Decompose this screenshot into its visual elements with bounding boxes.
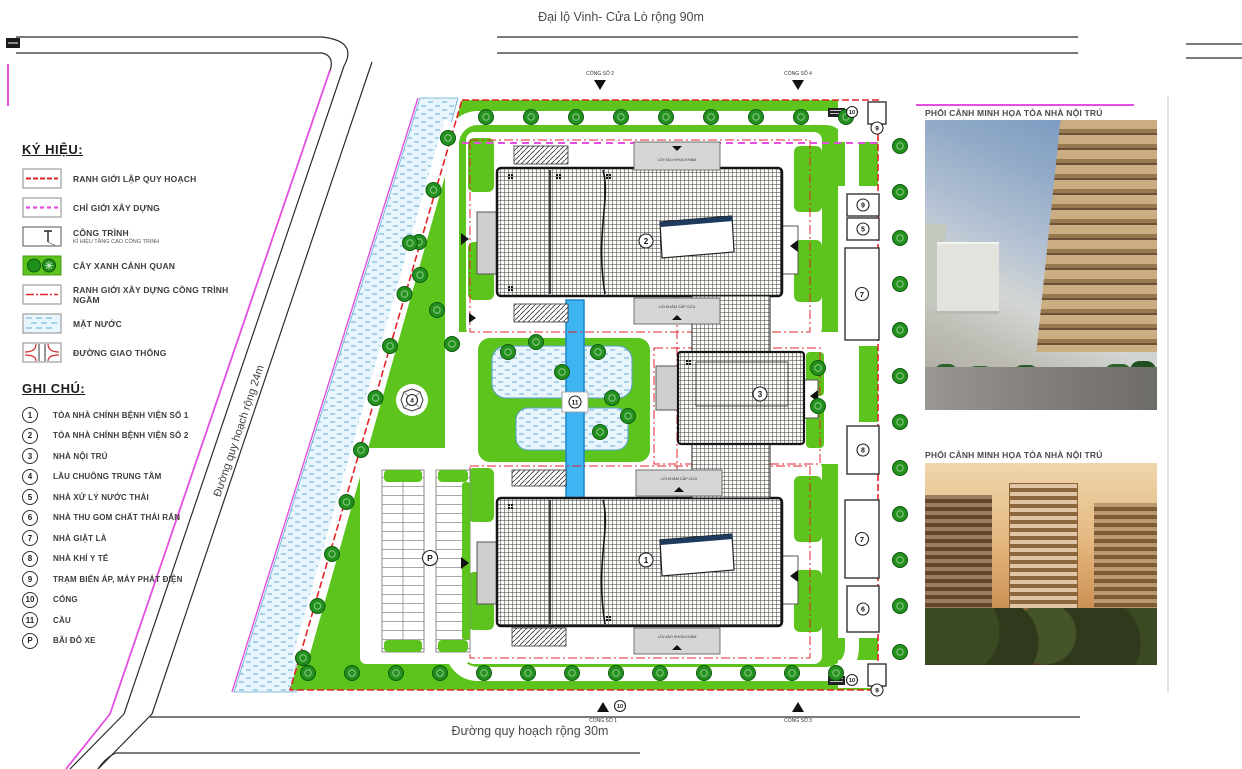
svg-text:1: 1 <box>644 556 649 565</box>
road-label-top: Đại lộ Vinh- Cửa Lò rộng 90m <box>0 10 1242 24</box>
svg-text:10: 10 <box>849 110 855 116</box>
building-hospital-1 <box>477 498 798 626</box>
build-limit-swatch <box>22 197 62 218</box>
master-plan-sheet: LỐI VÀO KHOA KHÁM LỐI KHÁM CẤP CỨU LỐI K… <box>0 0 1242 769</box>
planning-boundary-swatch <box>22 168 62 189</box>
notes-panel: GHI CHÚ: 1TÒA NHÀ CHÍNH BỆNH VIỆN SỐ 1 2… <box>22 381 257 653</box>
legend-item-underground-boundary: RANH GIỚI XÂY DỰNG CÔNG TRÌNH NGẦM <box>22 284 244 305</box>
note-item: 3NHÀ NỘI TRÚ <box>22 448 257 464</box>
note-item: 6NHÀ THU GOM CHẤT THẢI RẮN <box>22 510 257 526</box>
render2-tower <box>1009 483 1078 614</box>
building-hospital-2 <box>477 168 798 296</box>
svg-text:CỔNG SỐ 4: CỔNG SỐ 4 <box>784 70 812 77</box>
legend-heading: KÝ HIỆU: <box>22 142 244 157</box>
note-item: PBÃI ĐỖ XE <box>22 633 257 649</box>
render1-building <box>1036 120 1157 352</box>
render-caption-2: PHỐI CẢNH MINH HỌA TÒA NHÀ NỘI TRÚ <box>925 450 1175 460</box>
water-swatch <box>22 313 62 334</box>
note-item: 7NHÀ GIẶT LÀ <box>22 530 257 546</box>
traffic-swatch <box>22 342 62 363</box>
svg-text:CỔNG SỐ 3: CỔNG SỐ 3 <box>784 717 812 724</box>
render-photo-1 <box>925 120 1157 410</box>
svg-text:10: 10 <box>849 678 855 684</box>
render2-right-building <box>1094 503 1157 612</box>
svg-text:CỔNG SỐ 1: CỔNG SỐ 1 <box>589 717 617 724</box>
note-item: 10CỔNG <box>22 592 257 608</box>
render1-white-building <box>937 242 1000 315</box>
notes-heading: GHI CHÚ: <box>22 381 257 396</box>
svg-text:LỐI VÀO KHOA KHÁM: LỐI VÀO KHOA KHÁM <box>658 157 697 162</box>
svg-text:8: 8 <box>861 448 865 455</box>
note-item: 8NHÀ KHÍ Y TẾ <box>22 551 257 567</box>
render2-vegetation <box>925 608 1157 665</box>
svg-text:9: 9 <box>861 203 865 210</box>
svg-text:7: 7 <box>860 290 864 299</box>
svg-text:P: P <box>427 553 433 563</box>
svg-text:11: 11 <box>572 399 579 406</box>
svg-text:4: 4 <box>410 398 414 405</box>
svg-text:CỔNG SỐ 2: CỔNG SỐ 2 <box>586 70 614 77</box>
note-item: 9TRẠM BIẾN ÁP, MÁY PHÁT ĐIỆN <box>22 571 257 587</box>
svg-text:7: 7 <box>860 535 864 544</box>
svg-text:10: 10 <box>617 704 623 710</box>
legend-item-build-limit: CHỈ GIỚI XÂY DỰNG <box>22 197 244 218</box>
building-floors-subnote: KÍ HIỆU TẦNG CAO CÔNG TRÌNH <box>73 239 159 245</box>
svg-text:9: 9 <box>875 687 879 694</box>
legend-item-planning-boundary: RANH GIỚI LẬP QUY HOẠCH <box>22 168 244 189</box>
svg-text:2: 2 <box>644 237 649 246</box>
svg-text:LỐI KHÁM CẤP CỨU: LỐI KHÁM CẤP CỨU <box>661 476 698 481</box>
legend-item-building: CÔNG TRÌNH KÍ HIỆU TẦNG CAO CÔNG TRÌNH <box>22 226 244 247</box>
render2-left-building <box>925 495 992 612</box>
note-item: 2TÒA NHÀ CHÍNH BỆNH VIỆN SỐ 2 <box>22 428 257 444</box>
legend-item-greenery: CÂY XANH CẢNH QUAN <box>22 255 244 276</box>
note-item: 5NHÀ XỬ LÝ NƯỚC THẢI <box>22 489 257 505</box>
svg-text:LỐI KHÁM CẤP CỨU: LỐI KHÁM CẤP CỨU <box>659 304 696 309</box>
road-label-bottom: Đường quy hoạch rộng 30m <box>330 724 730 738</box>
legend-item-traffic: ĐƯỜNG GIAO THÔNG <box>22 342 244 363</box>
note-item: 1TÒA NHÀ CHÍNH BỆNH VIỆN SỐ 1 <box>22 407 257 423</box>
note-item: 4LẦU CHUÔNG TRUNG TÂM <box>22 469 257 485</box>
svg-text:LỐI VÀO KHOA KHÁM: LỐI VÀO KHOA KHÁM <box>658 634 697 639</box>
greenery-swatch <box>22 255 62 276</box>
svg-text:9: 9 <box>875 125 879 132</box>
legend-item-water: MẶT NƯỚC <box>22 313 244 334</box>
svg-text:3: 3 <box>758 390 763 399</box>
render1-road <box>925 367 1157 411</box>
underground-boundary-swatch <box>22 284 62 305</box>
note-item: 11CẦU <box>22 612 257 628</box>
building-swatch <box>22 226 62 247</box>
svg-text:5: 5 <box>861 227 865 234</box>
render-caption-1: PHỐI CẢNH MINH HỌA TÒA NHÀ NỘI TRÚ <box>925 108 1175 118</box>
svg-text:6: 6 <box>861 607 865 614</box>
render-photo-2 <box>925 463 1157 665</box>
legend-panel: KÝ HIỆU: RANH GIỚI LẬP QUY HOẠCH CHỈ GIỚ… <box>22 142 244 371</box>
